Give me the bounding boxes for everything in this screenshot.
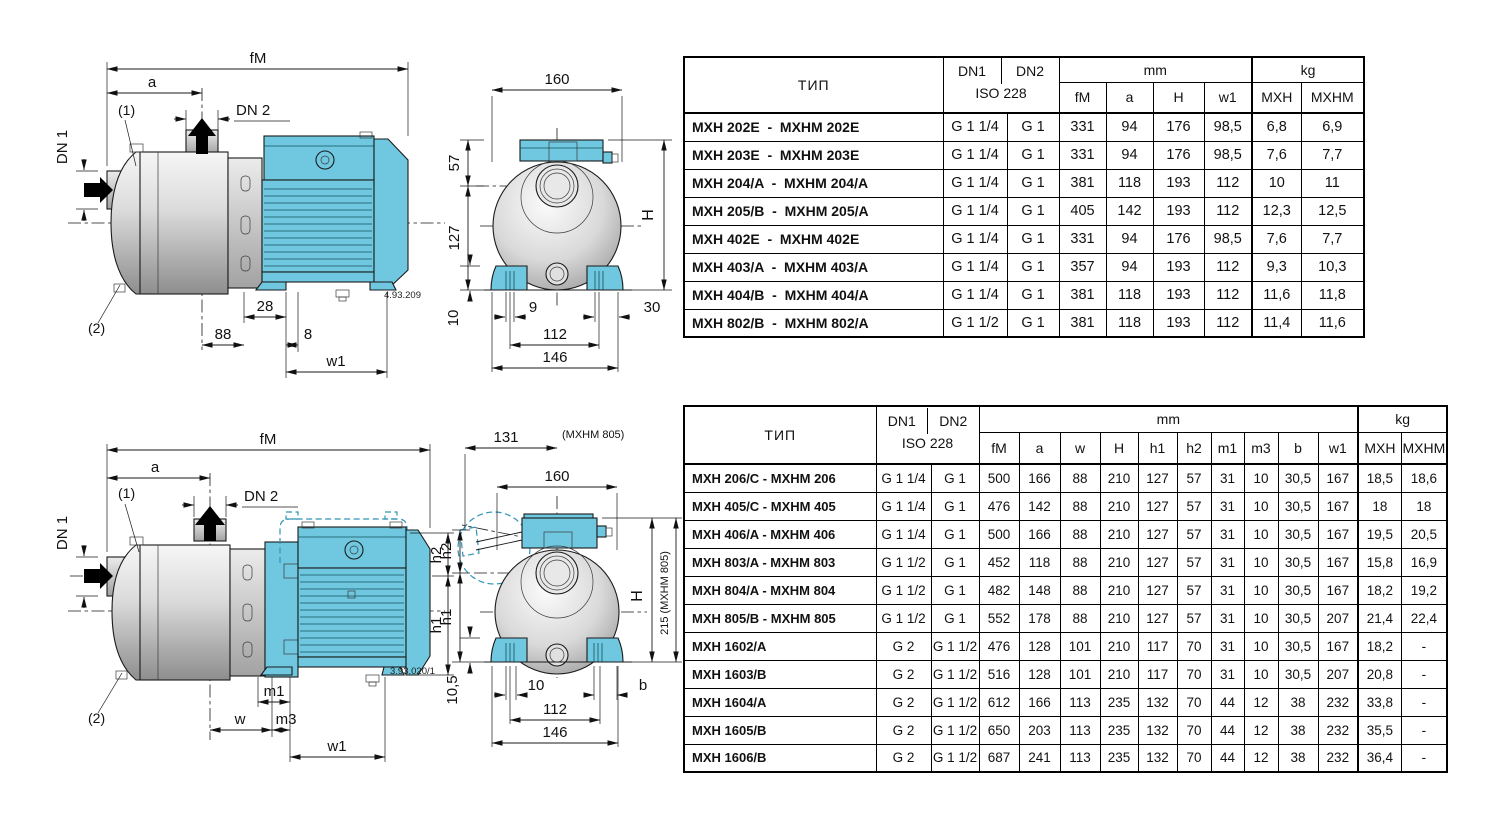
note-mxhm805: (MXHM 805) — [562, 429, 624, 441]
dimension-value-cell: G 1 — [931, 548, 979, 576]
dimension-value-cell: G 1 1/2 — [931, 660, 979, 688]
dimension-value-cell: - — [1401, 660, 1447, 688]
dimension-value-cell: 21,4 — [1358, 604, 1401, 632]
column-header-MXHM: MXHM — [1401, 432, 1447, 464]
dimension-value-cell: G 1 1/4 — [943, 141, 1007, 169]
dimension-value-cell: 7,7 — [1301, 225, 1364, 253]
dimension-value-cell: 57 — [1177, 548, 1211, 576]
dimension-value-cell: G 1 — [931, 492, 979, 520]
pump-type-cell: MXH 1606/B — [684, 744, 876, 772]
dimension-value-cell: 12 — [1244, 744, 1278, 772]
pump-front — [484, 514, 632, 674]
column-header-a: a — [1019, 432, 1060, 464]
dimension-value-cell: 142 — [1019, 492, 1060, 520]
dimension-value-cell: 127 — [1138, 464, 1177, 492]
dimension-value-cell: 35,5 — [1358, 716, 1401, 744]
column-header-h2: h2 — [1177, 432, 1211, 464]
dimension-value-cell: 10 — [1244, 520, 1278, 548]
dimension-value-cell: G 1 1/2 — [876, 548, 931, 576]
column-header-a: a — [1106, 82, 1153, 113]
dim-label-146: 146 — [542, 349, 567, 366]
dimension-value-cell: G 1 1/4 — [943, 225, 1007, 253]
dimension-value-cell: 113 — [1060, 688, 1100, 716]
dimension-value-cell: 331 — [1059, 141, 1106, 169]
drain-boss — [546, 263, 568, 285]
dimension-value-cell: 38 — [1278, 744, 1318, 772]
column-header-h1: h1 — [1138, 432, 1177, 464]
pump-front — [484, 140, 632, 290]
dim-label-30: 30 — [644, 299, 661, 316]
dn2-header: DN2 — [927, 408, 979, 434]
dimension-value-cell: 167 — [1318, 576, 1358, 604]
dimension-value-cell: 176 — [1153, 113, 1204, 141]
table-row: MXH 205/B - MXHM 205/AG 1 1/4G 140514219… — [684, 197, 1364, 225]
dimension-value-cell: 127 — [1138, 604, 1177, 632]
dimension-value-cell: 118 — [1106, 309, 1153, 337]
table-row: MXH 802/B - MXHM 802/AG 1 1/2G 138111819… — [684, 309, 1364, 337]
table-row: MXH 404/B - MXHM 404/AG 1 1/4G 138111819… — [684, 281, 1364, 309]
dim-label-88: 88 — [215, 326, 232, 343]
condensate-plug — [366, 675, 379, 682]
dim-label-146: 146 — [542, 724, 567, 741]
dimension-value-cell: 88 — [1060, 492, 1100, 520]
dimension-value-cell: 232 — [1318, 744, 1358, 772]
dimension-value-cell: 11,4 — [1252, 309, 1301, 337]
dimension-value-cell: 10 — [1244, 492, 1278, 520]
dimension-value-cell: 118 — [1019, 548, 1060, 576]
dim-label-105: 10,5 — [444, 675, 461, 704]
column-header-b: b — [1278, 432, 1318, 464]
column-header-type: ТИП — [684, 406, 876, 464]
table-row: MXH 203E - MXHM 203EG 1 1/4G 13319417698… — [684, 141, 1364, 169]
dimension-value-cell: G 1 1/4 — [876, 464, 931, 492]
dimension-value-cell: 98,5 — [1204, 113, 1252, 141]
pump-type-cell: MXH 406/A - MXHM 406 — [684, 520, 876, 548]
dim-label-w: w — [234, 711, 246, 728]
dimension-value-cell: 20,8 — [1358, 660, 1401, 688]
table-row: MXH 204/A - MXHM 204/AG 1 1/4G 138111819… — [684, 169, 1364, 197]
dim-label-8: 8 — [304, 326, 312, 343]
pump-type-cell: MXH 205/B - MXHM 205/A — [684, 197, 943, 225]
dimension-value-cell: 500 — [979, 464, 1019, 492]
dim-label-160: 160 — [544, 468, 569, 485]
column-header-fM: fM — [979, 432, 1019, 464]
dimension-value-cell: G 1 1/4 — [943, 197, 1007, 225]
drain-boss — [546, 644, 568, 666]
dimension-value-cell: 482 — [979, 576, 1019, 604]
pump-type-cell: MXH 202E - MXHM 202E — [684, 113, 943, 141]
dimension-value-cell: G 1 — [1007, 253, 1059, 281]
dim-label-h1: h1 — [438, 609, 455, 626]
dimension-value-cell: 210 — [1100, 604, 1138, 632]
dimension-value-cell: 193 — [1153, 253, 1204, 281]
dim-label-112: 112 — [543, 701, 567, 718]
drawing-front-view-mxh-small: 160 57 127 H 9 30 112 146 — [440, 50, 690, 380]
dimension-value-cell: 516 — [979, 660, 1019, 688]
column-header-H: H — [1100, 432, 1138, 464]
dimension-value-cell: 132 — [1138, 744, 1177, 772]
dimension-value-cell: 331 — [1059, 113, 1106, 141]
table-row: MXH 1602/AG 2G 1 1/247612810121011770311… — [684, 632, 1447, 660]
dimension-value-cell: 38 — [1278, 716, 1318, 744]
iso-228-header: ISO 228 — [877, 434, 979, 462]
dimension-value-cell: G 1 1/2 — [931, 716, 979, 744]
dimension-value-cell: 405 — [1059, 197, 1106, 225]
dimension-value-cell: - — [1401, 744, 1447, 772]
dimension-value-cell: 650 — [979, 716, 1019, 744]
dimension-value-cell: 44 — [1211, 688, 1244, 716]
foot-right — [587, 266, 623, 290]
dimension-value-cell: 210 — [1100, 492, 1138, 520]
dimension-value-cell: 19,2 — [1401, 576, 1447, 604]
dimension-value-cell: 166 — [1019, 688, 1060, 716]
dim-label-a: a — [151, 459, 160, 476]
dimension-value-cell: 235 — [1100, 716, 1138, 744]
dimension-value-cell: 94 — [1106, 113, 1153, 141]
table-row: MXH 803/A - MXHM 803G 1 1/2G 14521188821… — [684, 548, 1447, 576]
column-header-MXHM: MXHM — [1301, 82, 1364, 113]
dimension-value-cell: 18 — [1358, 492, 1401, 520]
dimension-value-cell: 112 — [1204, 253, 1252, 281]
dimension-value-cell: 31 — [1211, 576, 1244, 604]
drawing-ref-number: 3.93.020/1 — [390, 666, 435, 677]
column-header-w1: w1 — [1204, 82, 1252, 113]
dimension-value-cell: 132 — [1138, 688, 1177, 716]
dimension-value-cell: 127 — [1138, 548, 1177, 576]
dimension-value-cell: 381 — [1059, 169, 1106, 197]
dimension-value-cell: 31 — [1211, 604, 1244, 632]
dimension-value-cell: 381 — [1059, 281, 1106, 309]
dimension-value-cell: G 2 — [876, 688, 931, 716]
foot-left — [491, 638, 527, 662]
dimension-value-cell: G 1 — [931, 576, 979, 604]
pump-type-cell: MXH 1602/A — [684, 632, 876, 660]
column-header-kg: kg — [1252, 57, 1364, 82]
dim-label-w1: w1 — [325, 353, 345, 370]
dimension-value-cell: 30,5 — [1278, 632, 1318, 660]
dim-label-w1: w1 — [326, 738, 346, 755]
column-header-dn-group: DN1 DN2 ISO 228 — [876, 406, 979, 464]
table-row: MXH 1605/BG 2G 1 1/265020311323513270441… — [684, 716, 1447, 744]
dimension-value-cell: 88 — [1060, 576, 1100, 604]
dimension-value-cell: 210 — [1100, 660, 1138, 688]
dimension-value-cell: 235 — [1100, 744, 1138, 772]
dimension-value-cell: 31 — [1211, 660, 1244, 688]
dimension-value-cell: 166 — [1019, 464, 1060, 492]
dimension-value-cell: 11,8 — [1301, 281, 1364, 309]
drain-plug — [116, 671, 127, 679]
dimension-value-cell: 210 — [1100, 520, 1138, 548]
dimension-value-cell: 112 — [1204, 169, 1252, 197]
dimension-value-cell: G 1 — [1007, 281, 1059, 309]
dimension-value-cell: 94 — [1106, 225, 1153, 253]
dim-label-10: 10 — [445, 310, 462, 327]
dimension-value-cell: 235 — [1100, 688, 1138, 716]
pump-casing — [140, 152, 228, 294]
dimension-value-cell: 101 — [1060, 632, 1100, 660]
dimension-value-cell: 193 — [1153, 309, 1204, 337]
dim-label-fm: fM — [260, 431, 277, 448]
dim-label-131: 131 — [493, 429, 518, 446]
drawing-side-view-mxh-large: fM a DN 2 DN 1 (1) (2) h2 h1 m1 — [40, 425, 460, 780]
column-header-fM: fM — [1059, 82, 1106, 113]
lantern-bracket — [228, 158, 262, 288]
dimension-value-cell: 210 — [1100, 464, 1138, 492]
dimension-value-cell: 98,5 — [1204, 225, 1252, 253]
dimension-value-cell: 142 — [1106, 197, 1153, 225]
dimension-value-cell: 112 — [1204, 281, 1252, 309]
dn1-header: DN1 — [944, 58, 1001, 84]
dim-label-dn1: DN 1 — [54, 516, 71, 550]
pump-unit — [107, 519, 265, 680]
dimension-value-cell: G 1 1/4 — [943, 169, 1007, 197]
dim-label-dn1: DN 1 — [54, 130, 71, 164]
dimension-value-cell: 167 — [1318, 632, 1358, 660]
dimension-value-cell: 500 — [979, 520, 1019, 548]
dimension-value-cell: 118 — [1106, 169, 1153, 197]
pump-type-cell: MXH 404/B - MXHM 404/A — [684, 281, 943, 309]
dimension-value-cell: G 1 — [1007, 309, 1059, 337]
dimension-value-cell: 128 — [1019, 660, 1060, 688]
dim-label-h2: h2 — [438, 543, 455, 560]
dimension-value-cell: - — [1401, 688, 1447, 716]
column-header-type: ТИП — [684, 57, 943, 113]
dimension-value-cell: G 1 1/4 — [876, 520, 931, 548]
terminal-box — [520, 140, 603, 161]
column-header-MXH: MXH — [1252, 82, 1301, 113]
column-header-m3: m3 — [1244, 432, 1278, 464]
suction-boss — [536, 165, 578, 207]
drawing-front-view-mxh-large: 131 (MXHM 805) 160 h2 h1 H 215 (MXHM 805… — [440, 410, 702, 785]
table-row: MXH 405/C - MXHM 405G 1 1/4G 14761428821… — [684, 492, 1447, 520]
dimension-value-cell: 6,8 — [1252, 113, 1301, 141]
dimension-value-cell: 30,5 — [1278, 520, 1318, 548]
dimension-value-cell: 30,5 — [1278, 660, 1318, 688]
dimension-value-cell: G 2 — [876, 632, 931, 660]
dimension-value-cell: 12 — [1244, 716, 1278, 744]
dimension-value-cell: 15,8 — [1358, 548, 1401, 576]
dimension-value-cell: G 2 — [876, 660, 931, 688]
dimension-value-cell: 10 — [1244, 548, 1278, 576]
motor-foot-front — [256, 282, 286, 290]
dim-label-b: b — [639, 677, 647, 694]
dimension-value-cell: 31 — [1211, 632, 1244, 660]
dimension-value-cell: 57 — [1177, 492, 1211, 520]
dimension-value-cell: 381 — [1059, 309, 1106, 337]
dimension-value-cell: 176 — [1153, 225, 1204, 253]
dimension-value-cell: G 1 1/4 — [876, 492, 931, 520]
dimension-value-cell: 232 — [1318, 688, 1358, 716]
dimension-value-cell: 57 — [1177, 464, 1211, 492]
cable-gland — [603, 152, 612, 163]
pump-casing — [140, 545, 230, 680]
motor-rear-cap — [406, 530, 430, 675]
dimension-value-cell: 210 — [1100, 548, 1138, 576]
motor-rear-cap — [374, 139, 408, 289]
dimension-value-cell: - — [1401, 716, 1447, 744]
table-row: MXH 1604/AG 2G 1 1/261216611323513270441… — [684, 688, 1447, 716]
dimension-value-cell: 57 — [1177, 576, 1211, 604]
dimension-value-cell: 117 — [1138, 660, 1177, 688]
dimension-value-cell: 476 — [979, 632, 1019, 660]
column-header-dn-group: DN1 DN2 ISO 228 — [943, 57, 1059, 113]
pump-type-cell: MXH 805/B - MXHM 805 — [684, 604, 876, 632]
dimension-value-cell: 44 — [1211, 744, 1244, 772]
dim-label-h: H — [640, 209, 657, 221]
dimension-value-cell: 10 — [1244, 660, 1278, 688]
dimension-value-cell: 687 — [979, 744, 1019, 772]
dimension-value-cell: 12,5 — [1301, 197, 1364, 225]
dimension-value-cell: 11,6 — [1301, 309, 1364, 337]
motor-adapter — [265, 542, 298, 677]
table-row: MXH 805/B - MXHM 805G 1 1/2G 15521788821… — [684, 604, 1447, 632]
dimension-value-cell: 210 — [1100, 632, 1138, 660]
callout-1: (1) — [118, 102, 135, 118]
foot-left — [491, 266, 527, 290]
dim-label-h: H — [629, 590, 646, 602]
column-header-w: w — [1060, 432, 1100, 464]
table-row: MXH 402E - MXHM 402EG 1 1/4G 13319417698… — [684, 225, 1364, 253]
dimension-value-cell: 94 — [1106, 253, 1153, 281]
pump-type-cell: MXH 1604/A — [684, 688, 876, 716]
dimension-value-cell: 31 — [1211, 548, 1244, 576]
dimension-value-cell: 6,9 — [1301, 113, 1364, 141]
dimension-value-cell: 88 — [1060, 604, 1100, 632]
dimension-value-cell: 128 — [1019, 632, 1060, 660]
dimension-value-cell: 132 — [1138, 716, 1177, 744]
dimension-value-cell: G 1 1/2 — [931, 688, 979, 716]
dimension-value-cell: G 1 — [931, 604, 979, 632]
dimension-value-cell: G 1 1/4 — [943, 113, 1007, 141]
dimension-value-cell: G 1 — [1007, 225, 1059, 253]
dimension-value-cell: 11 — [1301, 169, 1364, 197]
motor-fin-body — [298, 568, 406, 657]
dimension-value-cell: 18,2 — [1358, 632, 1401, 660]
dimension-value-cell: 476 — [979, 492, 1019, 520]
dimension-value-cell: 10,3 — [1301, 253, 1364, 281]
dimension-value-cell: 20,5 — [1401, 520, 1447, 548]
dim-label-m3: m3 — [276, 711, 297, 728]
table-row: MXH 206/C - MXHM 206G 1 1/4G 15001668821… — [684, 464, 1447, 492]
dimension-value-cell: 18,6 — [1401, 464, 1447, 492]
dimension-value-cell: 178 — [1019, 604, 1060, 632]
dn1-header: DN1 — [877, 408, 928, 434]
dimension-value-cell: 176 — [1153, 141, 1204, 169]
pump-unit — [107, 130, 262, 294]
dimension-value-cell: 7,6 — [1252, 141, 1301, 169]
dimension-value-cell: G 1 — [931, 464, 979, 492]
pump-catalog-page: fM a DN 2 DN 1 (1) (2) 28 88 8 w1 — [0, 0, 1486, 815]
dimension-value-cell: G 1 1/2 — [931, 632, 979, 660]
dimension-value-cell: 10 — [1244, 576, 1278, 604]
dimension-value-cell: 113 — [1060, 744, 1100, 772]
dimension-value-cell: 7,6 — [1252, 225, 1301, 253]
dimension-value-cell: 207 — [1318, 604, 1358, 632]
callout-2: (2) — [88, 320, 105, 336]
dimension-value-cell: G 1 — [1007, 197, 1059, 225]
dimension-value-cell: G 1 — [931, 520, 979, 548]
dimension-value-cell: G 1 1/2 — [876, 604, 931, 632]
pump-type-cell: MXH 405/C - MXHM 405 — [684, 492, 876, 520]
foot-right — [587, 638, 623, 662]
dimension-value-cell: 57 — [1177, 604, 1211, 632]
pump-type-cell: MXH 803/A - MXHM 803 — [684, 548, 876, 576]
dimension-value-cell: 12 — [1244, 688, 1278, 716]
dimension-value-cell: 207 — [1318, 660, 1358, 688]
pump-type-cell: MXH 402E - MXHM 402E — [684, 225, 943, 253]
dimension-value-cell: 70 — [1177, 632, 1211, 660]
dn2-header: DN2 — [1001, 58, 1059, 84]
dim-label-fm: fM — [250, 50, 267, 67]
dimension-value-cell: 44 — [1211, 716, 1244, 744]
dimension-value-cell: 193 — [1153, 169, 1204, 197]
dimension-value-cell: 11,6 — [1252, 281, 1301, 309]
dimension-value-cell: 167 — [1318, 520, 1358, 548]
dim-label-dn2: DN 2 — [244, 488, 278, 505]
dim-label-215-mxhm805: 215 (MXHM 805) — [659, 551, 671, 635]
column-header-w1: w1 — [1318, 432, 1358, 464]
dimension-value-cell: 331 — [1059, 225, 1106, 253]
dimension-value-cell: 31 — [1211, 492, 1244, 520]
suction-boss — [536, 552, 578, 594]
dimension-value-cell: 203 — [1019, 716, 1060, 744]
drawing-ref-number: 4.93.209 — [384, 290, 421, 301]
dimension-value-cell: 16,9 — [1401, 548, 1447, 576]
column-header-MXH: MXH — [1358, 432, 1401, 464]
dimension-value-cell: 113 — [1060, 716, 1100, 744]
dimension-value-cell: G 1 1/4 — [943, 253, 1007, 281]
dimension-value-cell: 167 — [1318, 492, 1358, 520]
dimension-value-cell: 22,4 — [1401, 604, 1447, 632]
dimension-value-cell: 241 — [1019, 744, 1060, 772]
table-row: MXH 403/A - MXHM 403/AG 1 1/4G 135794193… — [684, 253, 1364, 281]
dimension-value-cell: 357 — [1059, 253, 1106, 281]
dimension-value-cell: 112 — [1204, 309, 1252, 337]
dimension-value-cell: 12,3 — [1252, 197, 1301, 225]
pump-type-cell: MXH 1603/B — [684, 660, 876, 688]
dimension-value-cell: 127 — [1138, 492, 1177, 520]
dimension-value-cell: 210 — [1100, 576, 1138, 604]
dimension-value-cell: 612 — [979, 688, 1019, 716]
motor — [256, 132, 408, 301]
dimension-value-cell: 30,5 — [1278, 576, 1318, 604]
dimension-value-cell: 31 — [1211, 520, 1244, 548]
dimension-value-cell: 118 — [1106, 281, 1153, 309]
pump-type-cell: MXH 802/B - MXHM 802/A — [684, 309, 943, 337]
dimension-value-cell: 18,2 — [1358, 576, 1401, 604]
dimension-value-cell: 98,5 — [1204, 141, 1252, 169]
dim-label-160: 160 — [544, 71, 569, 88]
dim-label-28: 28 — [257, 298, 274, 315]
column-header-kg: kg — [1358, 406, 1447, 432]
pump-type-cell: MXH 206/C - MXHM 206 — [684, 464, 876, 492]
dimension-value-cell: 552 — [979, 604, 1019, 632]
callout-1: (1) — [118, 485, 135, 501]
motor-foot-rear — [370, 282, 396, 290]
callout-2: (2) — [88, 710, 105, 726]
dimensions-table-mxh-206-1606: ТИП DN1 DN2 ISO 228 mm kg fMawHh1h2m1m3b… — [683, 405, 1448, 773]
dimension-value-cell: 31 — [1211, 464, 1244, 492]
column-header-m1: m1 — [1211, 432, 1244, 464]
dimension-value-cell: 18,5 — [1358, 464, 1401, 492]
dimension-value-cell: 33,8 — [1358, 688, 1401, 716]
dimension-value-cell: 10 — [1252, 169, 1301, 197]
dimension-value-cell: 193 — [1153, 281, 1204, 309]
dimension-value-cell: 94 — [1106, 141, 1153, 169]
dim-label-10: 10 — [528, 677, 545, 694]
dim-label-9: 9 — [529, 299, 537, 316]
dimension-value-cell: 18 — [1401, 492, 1447, 520]
